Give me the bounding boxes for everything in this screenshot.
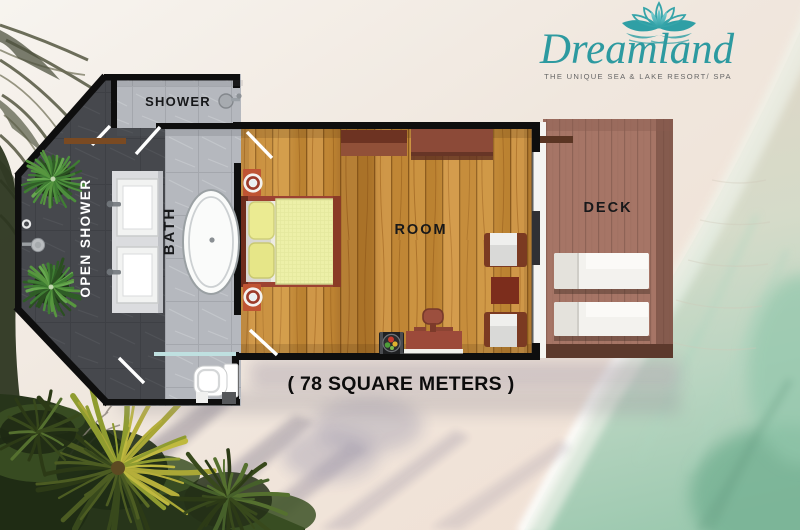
svg-text:OPEN SHOWER: OPEN SHOWER <box>78 178 93 297</box>
svg-text:SHOWER: SHOWER <box>145 94 211 109</box>
svg-text:Dreamland: Dreamland <box>539 26 735 73</box>
svg-text:BATH: BATH <box>161 207 178 256</box>
svg-text:ROOM: ROOM <box>394 222 447 238</box>
svg-text:DECK: DECK <box>583 200 632 216</box>
svg-text:THE UNIQUE SEA & LAKE RESORT/: THE UNIQUE SEA & LAKE RESORT/ SPA <box>544 72 732 81</box>
svg-text:( 78 SQUARE METERS ): ( 78 SQUARE METERS ) <box>287 373 514 395</box>
